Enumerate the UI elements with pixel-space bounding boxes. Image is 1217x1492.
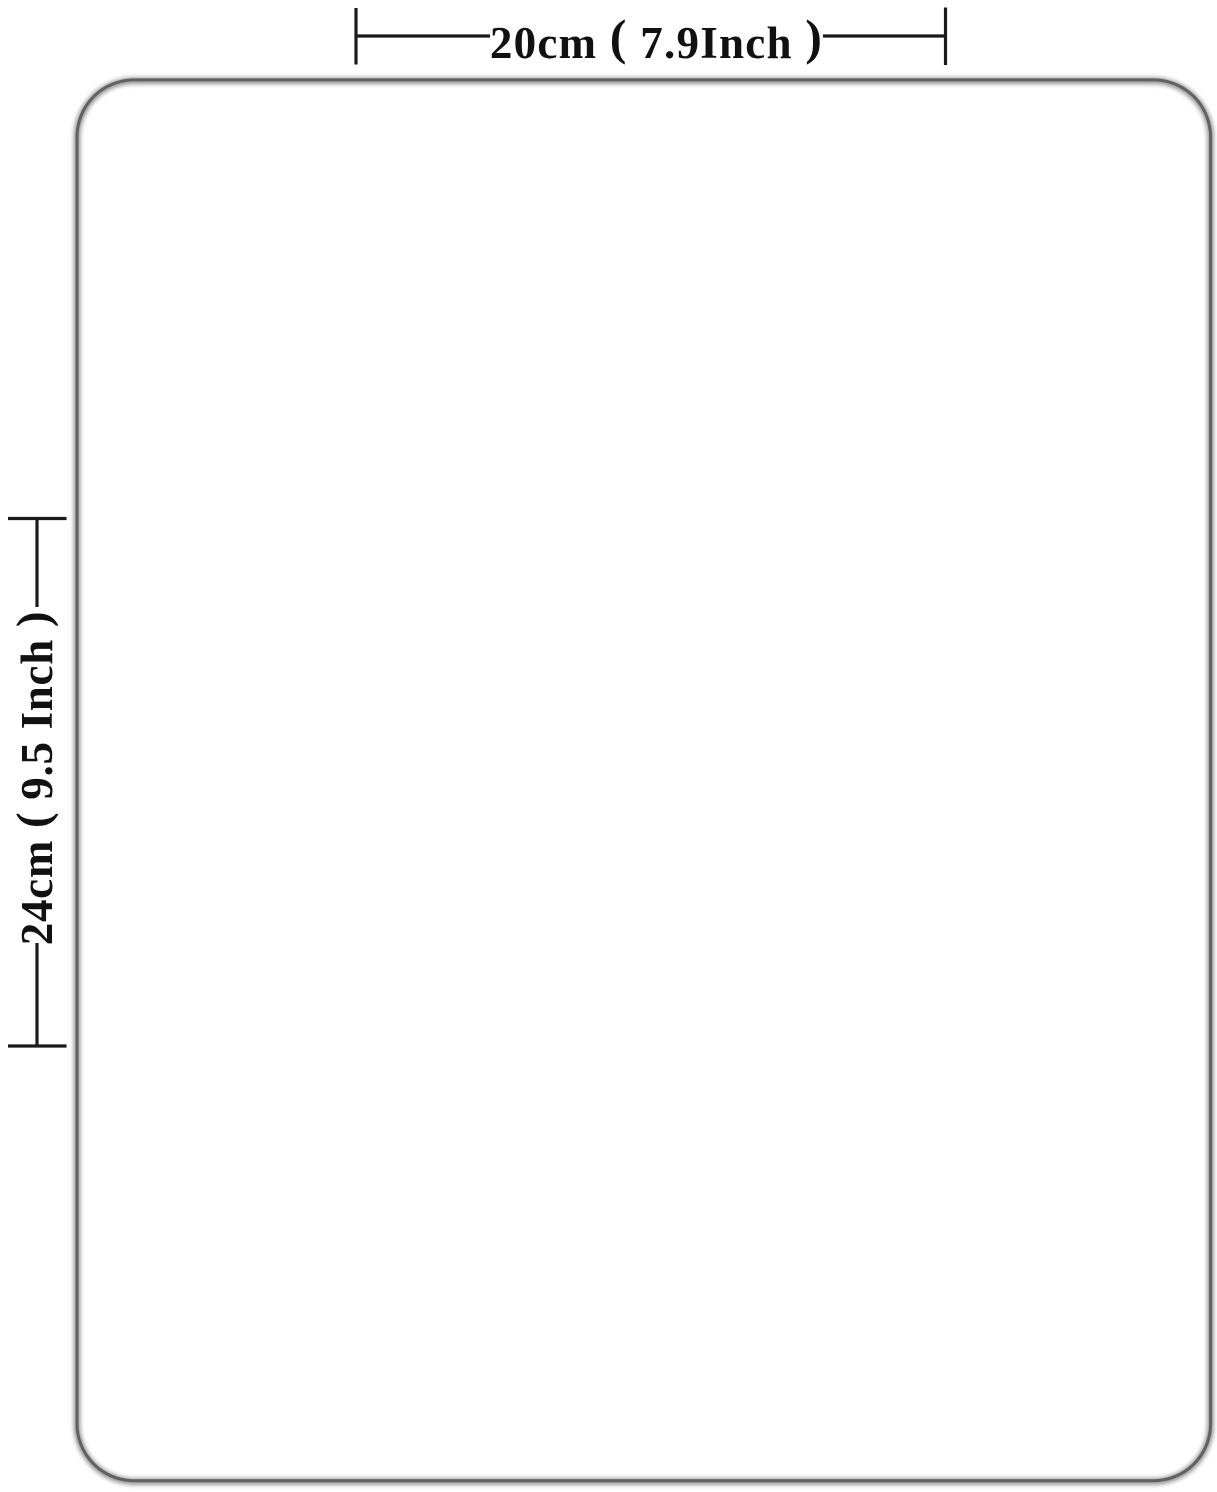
svg-text:20cm ( 7.9Inch ): 20cm ( 7.9Inch ): [490, 9, 823, 68]
svg-text:24cm ( 9.5 Inch ): 24cm ( 9.5 Inch ): [8, 611, 63, 945]
